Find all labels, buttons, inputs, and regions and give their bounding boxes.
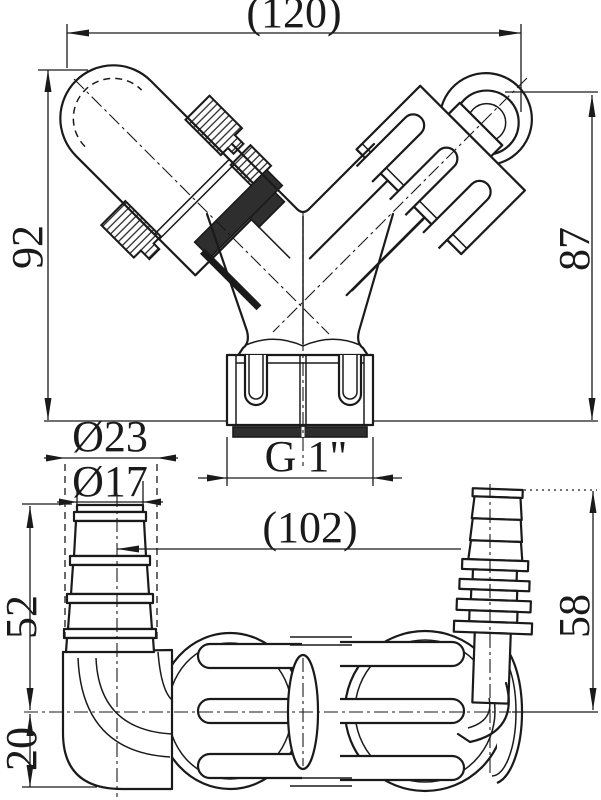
dim-right-hose-height-label: 58 — [550, 594, 599, 638]
hose-barb-left — [64, 505, 156, 652]
dim-elbow-offset-label: 20 — [0, 727, 46, 771]
dim-right-height-label: 87 — [550, 227, 599, 271]
top-view-y-connector — [16, 21, 573, 466]
dim-outer-diameter-label: Ø23 — [72, 412, 148, 461]
dim-top-width-label: (120) — [246, 0, 341, 37]
dim-thread-label: G 1" — [265, 432, 348, 481]
technical-drawing-canvas: (120) 92 87 G 1" Ø23 Ø17 — [0, 0, 601, 800]
dim-bottom-width-label: (102) — [262, 503, 357, 552]
dim-left-height-label: 92 — [3, 225, 52, 269]
right-arm-slotted-nut — [279, 37, 574, 332]
dim-hose-length-label: 52 — [0, 595, 46, 639]
coupling-nut-left — [158, 633, 302, 789]
drawing-page: (120) 92 87 G 1" Ø23 Ø17 — [0, 0, 601, 800]
dim-inner-diameter-label: Ø17 — [72, 457, 148, 506]
